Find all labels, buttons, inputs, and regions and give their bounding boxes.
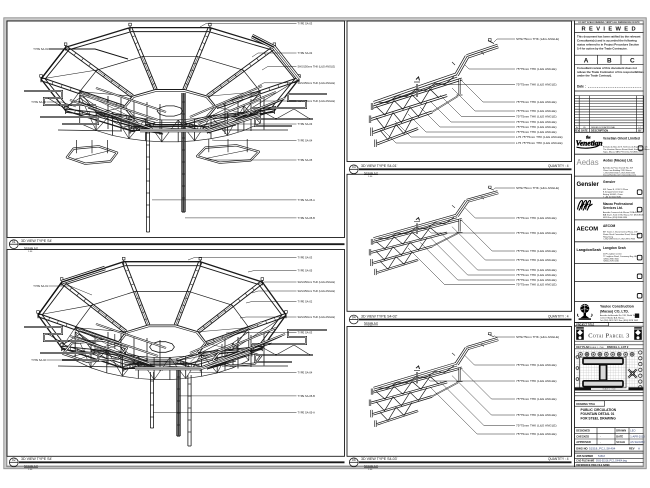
svg-text:75*75mm THK (L&G ANGLE): 75*75mm THK (L&G ANGLE)	[516, 83, 557, 87]
svg-text:TYPE SA-03: TYPE SA-03	[298, 22, 313, 26]
svg-text:TYPE SA-05: TYPE SA-05	[298, 269, 313, 273]
svg-text:TYPE SA-05-A: TYPE SA-05-A	[298, 198, 316, 202]
svg-text:TYPE SA-05-B: TYPE SA-05-B	[298, 394, 316, 398]
svg-text:SHS/150mm THK (L&G ANGLE): SHS/150mm THK (L&G ANGLE)	[298, 280, 336, 284]
svg-text:3D VIEW TYPE S4': 3D VIEW TYPE S4'	[21, 239, 52, 243]
svg-text:75*75mm THK (L&G ANGLE): 75*75mm THK (L&G ANGLE)	[516, 216, 557, 220]
svg-text:PARCEL 1, LOT 2: PARCEL 1, LOT 2	[607, 345, 629, 349]
svg-text:(Macau) CO, LTD.: (Macau) CO, LTD.	[600, 309, 629, 313]
svg-text:macau@aedas.com www.aedas.co: macau@aedas.com www.aedas.com	[603, 175, 636, 177]
svg-text:3D VIEW TYPE S4-01': 3D VIEW TYPE S4-01'	[361, 164, 398, 168]
svg-text:TYPE SA-04: TYPE SA-04	[298, 371, 313, 375]
svg-text:-: -	[600, 441, 601, 444]
svg-text:Aedas (Macau) Ltd.: Aedas (Macau) Ltd.	[603, 158, 633, 162]
svg-text:TYPE SA-02: TYPE SA-02	[31, 100, 46, 104]
svg-text:TYPE SA-05-B: TYPE SA-05-B	[298, 216, 316, 220]
svg-text:SHS/150mm THK (L&G ANGLE): SHS/150mm THK (L&G ANGLE)	[298, 64, 336, 68]
svg-text:DESIGNED: DESIGNED	[576, 429, 590, 433]
svg-text:SHS/75mm THK (L&G ANGLE): SHS/75mm THK (L&G ANGLE)	[516, 37, 559, 41]
svg-text:1:50: 1:50	[28, 469, 33, 471]
svg-text:DESCRIPTION: DESCRIPTION	[591, 130, 608, 133]
svg-text:Yaulee Construction: Yaulee Construction	[600, 305, 634, 309]
svg-text:Gensler: Gensler	[577, 182, 600, 188]
svg-text:SHS/75mm THK (L&G ANGLE): SHS/75mm THK (L&G ANGLE)	[516, 335, 559, 339]
svg-text:REFERENCE DWG FILE NAME: REFERENCE DWG FILE NAME	[576, 464, 610, 467]
svg-text:QUANTITY : 4: QUANTITY : 4	[548, 164, 569, 168]
svg-text:Tel: (853) 2878 7672 Fax: (8: Tel: (853) 2878 7672 Fax: (853) 2878 764…	[600, 320, 639, 322]
svg-text:Venetian Orient Limited: Venetian Orient Limited	[603, 136, 640, 140]
svg-text:75*75mm THK (L&G ANGLE): 75*75mm THK (L&G ANGLE)	[516, 258, 557, 262]
svg-text:SHS/75mm THK (L&G ANGLE): SHS/75mm THK (L&G ANGLE)	[516, 186, 559, 190]
svg-text:TYPE SA-05: TYPE SA-05	[298, 158, 313, 162]
svg-text:75*75mm THK (L&G ANGLE): 75*75mm THK (L&G ANGLE)	[516, 120, 557, 124]
svg-text:-: -	[600, 435, 601, 438]
svg-text:Langdon Seah: Langdon Seah	[603, 246, 626, 250]
svg-text:75*75mm THK (L&G ANGLE): 75*75mm THK (L&G ANGLE)	[516, 273, 557, 277]
svg-text:Gensler: Gensler	[603, 180, 616, 184]
svg-text:DATE: DATE	[581, 130, 588, 133]
svg-text:t +852 2893 1551 f +852 2891: t +852 2893 1551 f +852 2891 7834	[603, 238, 636, 241]
svg-text:SCALE 1/2: SCALE 1/2	[24, 246, 38, 250]
svg-text:75*75mm THK (L&G ANGLE): 75*75mm THK (L&G ANGLE)	[516, 100, 557, 104]
svg-text:75*75mm THK (L&G ANGLE): 75*75mm THK (L&G ANGLE)	[516, 363, 557, 367]
svg-text:SHS/150mm THK (L&G ANGLE): SHS/150mm THK (L&G ANGLE)	[298, 315, 336, 319]
svg-text:TYPE SA-04: TYPE SA-04	[298, 139, 313, 143]
svg-text:01: 01	[12, 240, 16, 244]
svg-text:1:50: 1:50	[368, 176, 373, 178]
svg-text:SHS/150mm THK (L&G ANGLE): SHS/150mm THK (L&G ANGLE)	[298, 99, 336, 103]
svg-text:f (852) 2576 0416: f (852) 2576 0416	[603, 261, 620, 263]
svg-text:3D VIEW TYPE S4-02': 3D VIEW TYPE S4-02'	[361, 314, 398, 318]
svg-text:3D VIEW TYPE S4-03': 3D VIEW TYPE S4-03'	[361, 457, 398, 461]
svg-text:51518_PCJ_SK404: 51518_PCJ_SK404	[589, 447, 616, 451]
svg-text:0833 Fax: (853) 8506 0834: 0833 Fax: (853) 8506 0834	[603, 217, 628, 219]
svg-text:Taipa, Macau SAR, P.R.China T: Taipa, Macau SAR, P.R.China Tel:(853) 28…	[603, 151, 644, 154]
svg-text:TYPE SA-02: TYPE SA-02	[298, 51, 313, 55]
svg-text:REV: REV	[629, 447, 635, 451]
svg-text:1-APR-2010: 1-APR-2010	[630, 434, 645, 438]
svg-text:51518: 51518	[598, 455, 606, 458]
svg-text:03: 03	[352, 165, 356, 169]
svg-text:TYPE SA-01: TYPE SA-01	[33, 284, 48, 288]
svg-text:75*75mm THK (L&G ANGLE): 75*75mm THK (L&G ANGLE)	[516, 413, 557, 417]
svg-text:LEO: LEO	[630, 429, 635, 433]
svg-text:1:50: 1:50	[28, 251, 33, 253]
svg-text:APPROVED: APPROVED	[576, 440, 591, 444]
svg-text:3D VIEW TYPE S4': 3D VIEW TYPE S4'	[21, 457, 52, 461]
svg-text:LangdonSeah: LangdonSeah	[577, 248, 602, 252]
svg-text:75*75mm THK (L&G ANGLE): 75*75mm THK (L&G ANGLE)	[516, 379, 557, 383]
svg-text:DWG NO: DWG NO	[576, 447, 587, 451]
svg-text:TYPE SA-03: TYPE SA-03	[298, 331, 313, 335]
svg-text:SCALE 1/2: SCALE 1/2	[364, 171, 378, 175]
svg-text:TYPE SA-05-A: TYPE SA-05-A	[298, 410, 316, 414]
svg-text:REV: REV	[574, 130, 579, 133]
svg-text:QUANTITY : 4: QUANTITY : 4	[548, 457, 569, 461]
svg-text:L75 75*75mm THK (L&G ANGLE): L75 75*75mm THK (L&G ANGLE)	[516, 141, 563, 145]
svg-text:5.4 for action by the Trade Co: 5.4 for action by the Trade Contractor.	[577, 47, 628, 51]
svg-text:75*75mm THK (L&G ANGLE): 75*75mm THK (L&G ANGLE)	[516, 283, 557, 287]
svg-text:75*75mm THK (L&G ANGLE): 75*75mm THK (L&G ANGLE)	[516, 231, 557, 235]
svg-text:75*75mm THK (L&G ANGLE): 75*75mm THK (L&G ANGLE)	[516, 115, 557, 119]
svg-text:TYPE SA-02: TYPE SA-02	[31, 358, 46, 362]
svg-text:75*75mm THK (L&G ANGLE): 75*75mm THK (L&G ANGLE)	[516, 424, 557, 428]
svg-text:02: 02	[12, 458, 16, 462]
svg-text:CHECKED: CHECKED	[576, 434, 589, 438]
svg-text:75*75mm THK (L&G ANGLE): 75*75mm THK (L&G ANGLE)	[516, 130, 557, 134]
svg-text:Aedas: Aedas	[577, 158, 599, 167]
svg-text:FOUNTAIN DETAIL 01: FOUNTAIN DETAIL 01	[581, 412, 615, 416]
svg-text:TYPE SA-03: TYPE SA-03	[298, 256, 313, 260]
svg-text:SCALE: SCALE	[616, 440, 625, 444]
svg-text:75*75mm THK (L&G ANGLE): 75*75mm THK (L&G ANGLE)	[516, 249, 557, 253]
svg-text:SHS/150mm THK (L&G ANGLE): SHS/150mm THK (L&G ANGLE)	[298, 81, 336, 85]
svg-text:75*75mm THK (L&G ANGLE): 75*75mm THK (L&G ANGLE)	[516, 432, 557, 436]
svg-text:A: A	[584, 57, 589, 64]
svg-text:R E V I E W E D: R E V I E W E D	[582, 27, 637, 33]
svg-text:A: A	[638, 447, 640, 451]
svg-text:Services Ltd.: Services Ltd.	[603, 206, 623, 210]
svg-text:Venetian: Venetian	[576, 139, 603, 148]
svg-text:75*75mm THK (L&G ANGLE): 75*75mm THK (L&G ANGLE)	[516, 125, 557, 129]
svg-text:KEY PLAN: KEY PLAN	[576, 345, 589, 349]
svg-text:BY: BY	[638, 130, 642, 133]
svg-text:SHS/150mm THK (L&G ANGLE): SHS/150mm THK (L&G ANGLE)	[298, 289, 336, 293]
svg-text:DO NOT SCALE DRAWING. VERIFY A: DO NOT SCALE DRAWING. VERIFY ALL DIMENSI…	[578, 21, 640, 24]
svg-text:1:50: 1:50	[368, 469, 373, 471]
svg-text:75*75mm THK (L&G ANGLE): 75*75mm THK (L&G ANGLE)	[516, 397, 557, 401]
svg-text:Cotai Parcel 3: Cotai Parcel 3	[588, 332, 629, 339]
svg-text:75*75mm THK (L&G ANGLE): 75*75mm THK (L&G ANGLE)	[516, 109, 557, 113]
svg-text:DRAWING TITLE: DRAWING TITLE	[576, 403, 595, 406]
svg-text:AS SHOWN: AS SHOWN	[630, 440, 644, 444]
svg-text:75*75mm THK (L&G ANGLE): 75*75mm THK (L&G ANGLE)	[516, 268, 557, 272]
svg-text:SCALE 1/2: SCALE 1/2	[364, 321, 378, 325]
svg-text:TYPE SA-02: TYPE SA-02	[298, 300, 313, 304]
svg-text:75*75mm THK (L&G ANGLE): 75*75mm THK (L&G ANGLE)	[516, 278, 557, 282]
svg-text:JOB NUMBER: JOB NUMBER	[576, 455, 593, 458]
svg-text:T +86 10 6505 8585: T +86 10 6505 8585	[603, 196, 622, 198]
svg-text:75*75mm THK (L&G ANGLE): 75*75mm THK (L&G ANGLE)	[516, 67, 557, 71]
svg-text:TYPE SA-01: TYPE SA-01	[33, 47, 48, 51]
svg-text:5933-51518_PCJ_SK404.dwg: 5933-51518_PCJ_SK404.dwg	[596, 461, 628, 463]
svg-text:TYPE SA-03: TYPE SA-03	[298, 122, 313, 126]
svg-text:L75 75*75mm THK (L&G ANGLE): L75 75*75mm THK (L&G ANGLE)	[516, 135, 563, 139]
svg-text:04: 04	[352, 315, 356, 319]
svg-text:DRAWN: DRAWN	[616, 429, 626, 433]
svg-text:DATE: DATE	[616, 434, 623, 438]
svg-text:SCALE 1/2: SCALE 1/2	[364, 464, 378, 468]
svg-text:FOR STEEL DRAWING: FOR STEEL DRAWING	[581, 417, 617, 421]
svg-text:AECOM: AECOM	[603, 224, 616, 228]
svg-text:05: 05	[352, 458, 356, 462]
svg-text:CAD FILE NAME: CAD FILE NAME	[576, 460, 594, 463]
svg-text:QUANTITY : 4: QUANTITY : 4	[548, 314, 569, 318]
svg-text:C: C	[630, 57, 635, 64]
svg-text:SCALE 1/2: SCALE 1/2	[24, 464, 38, 468]
svg-text:B: B	[607, 57, 612, 64]
svg-text:PUBLIC CIRCULATION: PUBLIC CIRCULATION	[581, 408, 617, 412]
svg-text:ISSUED FOR APPROVAL: ISSUED FOR APPROVAL	[591, 126, 616, 129]
svg-text:Date :: Date :	[577, 84, 586, 88]
svg-text:AECOM: AECOM	[577, 227, 599, 233]
svg-text:under the Trade Contract).: under the Trade Contract).	[577, 74, 612, 78]
